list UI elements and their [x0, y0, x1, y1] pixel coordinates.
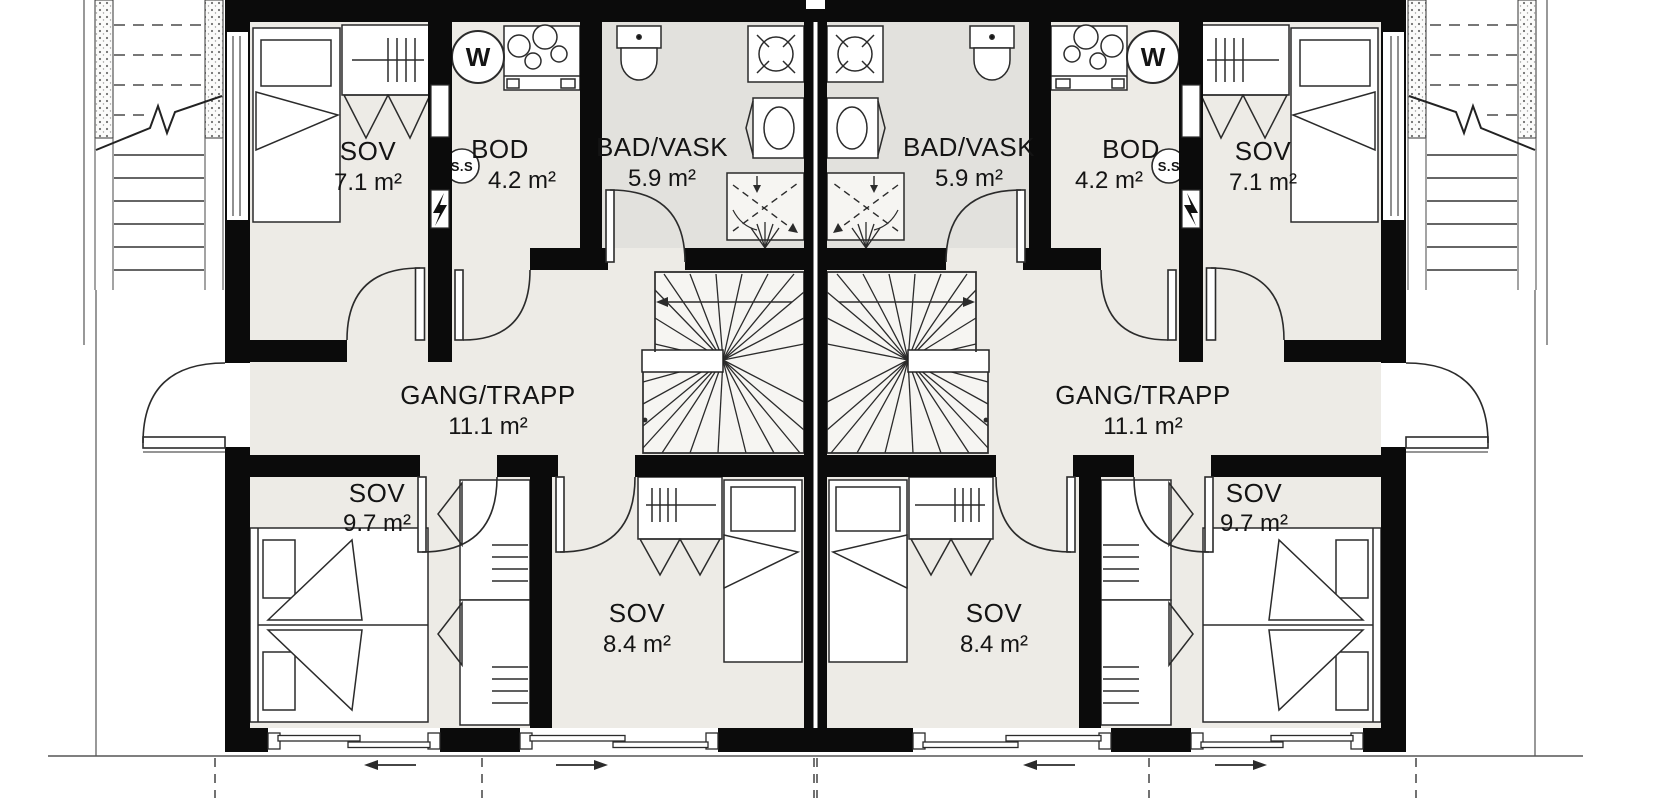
room-area-bad-right: 5.9 m² — [935, 165, 1003, 192]
water-heater-label-left: W — [466, 42, 491, 72]
room-area-gang-right: 11.1 m² — [1103, 413, 1183, 440]
room-label-bad-right: BAD/VASK — [903, 132, 1035, 162]
room-label-sov-mid-left: SOV — [609, 598, 666, 628]
room-label-bod-right: BOD — [1102, 134, 1160, 164]
room-label-sov-main-left: SOV — [349, 478, 406, 508]
room-area-sov-top-right: 7.1 m² — [1229, 169, 1297, 196]
room-area-sov-mid-right: 8.4 m² — [960, 631, 1028, 658]
room-label-sov-top-left: SOV — [340, 136, 397, 166]
floorplan-canvas: SOV 7.1 m² BOD 4.2 m² BAD/VASK 5.9 m² GA… — [0, 0, 1670, 800]
room-area-gang-left: 11.1 m² — [448, 413, 528, 440]
room-label-sov-top-right: SOV — [1235, 136, 1292, 166]
room-area-bad-left: 5.9 m² — [628, 165, 696, 192]
room-label-gang-right: GANG/TRAPP — [1055, 380, 1230, 410]
room-area-sov-main-right: 9.7 m² — [1220, 510, 1288, 537]
room-area-bod-right: 4.2 m² — [1075, 167, 1143, 194]
room-label-sov-mid-right: SOV — [966, 598, 1023, 628]
room-label-sov-main-right: SOV — [1226, 478, 1283, 508]
room-area-sov-main-left: 9.7 m² — [343, 510, 411, 537]
floorplan-svg: SOV 7.1 m² BOD 4.2 m² BAD/VASK 5.9 m² GA… — [0, 0, 1670, 800]
room-label-gang-left: GANG/TRAPP — [400, 380, 575, 410]
ss-cabinet-label-right: S.S — [1158, 159, 1180, 174]
ss-cabinet-label-left: S.S — [451, 159, 473, 174]
room-label-bad-left: BAD/VASK — [596, 132, 728, 162]
room-area-bod-left: 4.2 m² — [488, 167, 556, 194]
room-area-sov-mid-left: 8.4 m² — [603, 631, 671, 658]
room-area-sov-top-left: 7.1 m² — [334, 169, 402, 196]
room-label-bod-left: BOD — [471, 134, 529, 164]
water-heater-label-right: W — [1141, 42, 1166, 72]
